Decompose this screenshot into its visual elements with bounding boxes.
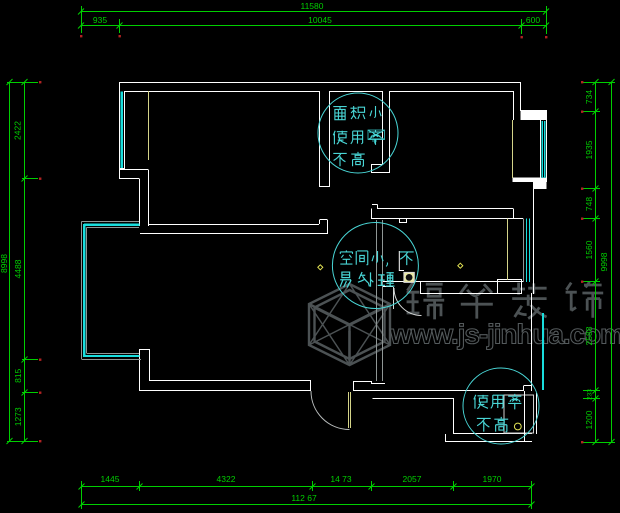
svg-text:2588: 2588 (584, 326, 594, 345)
svg-text:10045: 10045 (308, 15, 332, 25)
svg-text:600: 600 (526, 15, 540, 25)
svg-text:8998: 8998 (0, 254, 9, 273)
svg-text:748: 748 (584, 197, 594, 211)
svg-text:233: 233 (587, 389, 594, 400)
svg-text:9998: 9998 (599, 252, 609, 271)
svg-text:14 73: 14 73 (330, 474, 352, 484)
svg-text:734: 734 (584, 90, 594, 104)
svg-text:112 67: 112 67 (291, 493, 317, 503)
svg-text:1935: 1935 (584, 140, 594, 159)
svg-text:4488: 4488 (13, 259, 23, 278)
svg-text:1560: 1560 (584, 240, 594, 259)
svg-text:11580: 11580 (300, 1, 323, 11)
svg-text:2422: 2422 (13, 121, 23, 140)
svg-text:815: 815 (13, 368, 23, 382)
svg-text:1970: 1970 (483, 474, 502, 484)
svg-text:1445: 1445 (101, 474, 120, 484)
svg-text:2057: 2057 (403, 474, 422, 484)
svg-text:1200: 1200 (584, 410, 594, 429)
svg-text:1273: 1273 (13, 407, 23, 426)
svg-text:4322: 4322 (217, 474, 236, 484)
svg-text:935: 935 (93, 15, 107, 25)
